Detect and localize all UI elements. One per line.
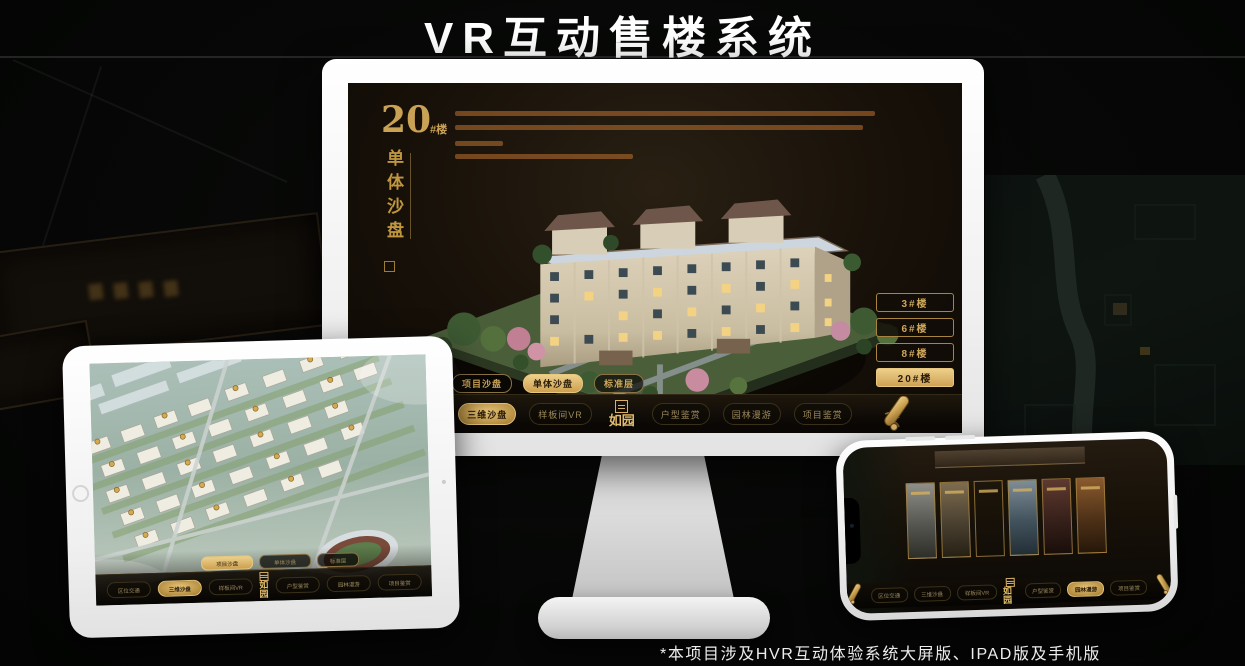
nav-item-showroom-vr[interactable]: 样板间VR <box>529 403 592 425</box>
nav-item-floorplan[interactable]: 户型鉴赏 <box>1024 582 1061 598</box>
poster-canvas: VR互动售楼系统 20 #楼 单体沙盘 <box>0 0 1245 666</box>
volume-button[interactable] <box>905 436 935 441</box>
floor-button-6[interactable]: 6#楼 <box>876 318 954 337</box>
scroll-icon[interactable] <box>89 576 99 606</box>
nav-item-garden-roam[interactable]: 园林漫游 <box>326 575 370 592</box>
floor-button-group: 3#楼 6#楼 8#楼 20#楼 <box>876 293 954 387</box>
camera-icon <box>442 480 446 484</box>
monitor-stand-base <box>538 597 770 639</box>
nav-item-location[interactable]: 区位交通 <box>871 587 908 603</box>
power-button[interactable] <box>1173 495 1178 529</box>
tablet: 项目沙盘 单体沙盘 标准层 区位交通 三维沙盘 样板间VR 如园 户型鉴赏 园林… <box>62 336 460 639</box>
scene-panel[interactable] <box>1076 477 1107 554</box>
nav-item-floorplan[interactable]: 户型鉴赏 <box>652 403 710 425</box>
floor-button-3[interactable]: 3#楼 <box>876 293 954 312</box>
footnote-text: *本项目涉及HVR互动体验系统大屏版、IPAD版及手机版 <box>660 640 1101 664</box>
brand-logo: 如园 <box>609 400 635 428</box>
volume-button[interactable] <box>945 435 975 440</box>
scroll-icon[interactable] <box>1153 573 1172 601</box>
brand-logo: 如园 <box>259 572 269 600</box>
nav-item-3d-sandbox[interactable]: 三维沙盘 <box>914 586 951 602</box>
scene-panel[interactable] <box>974 480 1005 557</box>
nav-item-showroom-vr[interactable]: 样板间VR <box>956 584 997 600</box>
camera-icon <box>850 524 854 528</box>
sandbox-tab-bar: 项目沙盘 单体沙盘 标准层 <box>452 374 644 393</box>
brand-logo: 如园 <box>1002 577 1019 605</box>
tablet-screen: 项目沙盘 单体沙盘 标准层 区位交通 三维沙盘 样板间VR 如园 户型鉴赏 园林… <box>89 354 432 605</box>
nav-item-garden-roam[interactable]: 园林漫游 <box>723 403 781 425</box>
phone-screen: 区位交通 三维沙盘 样板间VR 如园 户型鉴赏 园林漫游 项目鉴赏 <box>842 438 1171 614</box>
bg-aerial-photo <box>985 175 1245 465</box>
scroll-icon[interactable] <box>883 396 923 432</box>
nav-item-floorplan[interactable]: 户型鉴赏 <box>275 576 319 593</box>
scene-panel[interactable] <box>940 481 971 558</box>
floor-button-20[interactable]: 20#楼 <box>876 368 954 387</box>
tab-single-sandbox[interactable]: 单体沙盘 <box>259 554 311 569</box>
ceiling-beam <box>935 447 1085 469</box>
tab-standard-floor[interactable]: 标准层 <box>317 552 359 567</box>
phone: 区位交通 三维沙盘 样板间VR 如园 户型鉴赏 园林漫游 项目鉴赏 <box>835 431 1178 622</box>
nav-item-project-view[interactable]: 项目鉴赏 <box>1110 580 1147 596</box>
nav-item-project-view[interactable]: 项目鉴赏 <box>794 403 852 425</box>
bg-map-line <box>13 59 288 183</box>
seal-icon <box>384 261 395 272</box>
scene-panel[interactable] <box>906 482 937 559</box>
nav-item-garden-roam[interactable]: 园林漫游 <box>1067 581 1104 597</box>
nav-item-showroom-vr[interactable]: 样板间VR <box>208 578 252 595</box>
tab-standard-floor[interactable]: 标准层 <box>594 374 644 393</box>
seal-icon <box>259 572 268 581</box>
home-button[interactable] <box>72 485 89 502</box>
tab-project-sandbox[interactable]: 项目沙盘 <box>452 374 512 393</box>
seal-icon <box>615 400 628 413</box>
nav-item-3d-sandbox[interactable]: 三维沙盘 <box>157 580 201 597</box>
monitor-stand-neck <box>571 454 735 604</box>
scene-panel[interactable] <box>1008 479 1039 556</box>
description-line <box>455 111 875 116</box>
tab-project-sandbox[interactable]: 项目沙盘 <box>201 555 253 570</box>
scroll-icon[interactable] <box>847 582 866 610</box>
nav-item-project-view[interactable]: 项目鉴赏 <box>377 574 421 591</box>
nav-item-location[interactable]: 区位交通 <box>106 581 150 598</box>
scene-panel[interactable] <box>1042 478 1073 555</box>
floor-button-8[interactable]: 8#楼 <box>876 343 954 362</box>
phone-notch <box>844 498 861 564</box>
page-title: VR互动售楼系统 <box>0 2 1245 66</box>
seal-icon <box>1006 577 1015 586</box>
tab-single-sandbox[interactable]: 单体沙盘 <box>523 374 583 393</box>
description-line <box>455 125 863 130</box>
scroll-icon[interactable] <box>428 566 432 596</box>
brand-logo-text: 如园 <box>609 415 635 428</box>
nav-item-3d-sandbox[interactable]: 三维沙盘 <box>458 403 516 425</box>
